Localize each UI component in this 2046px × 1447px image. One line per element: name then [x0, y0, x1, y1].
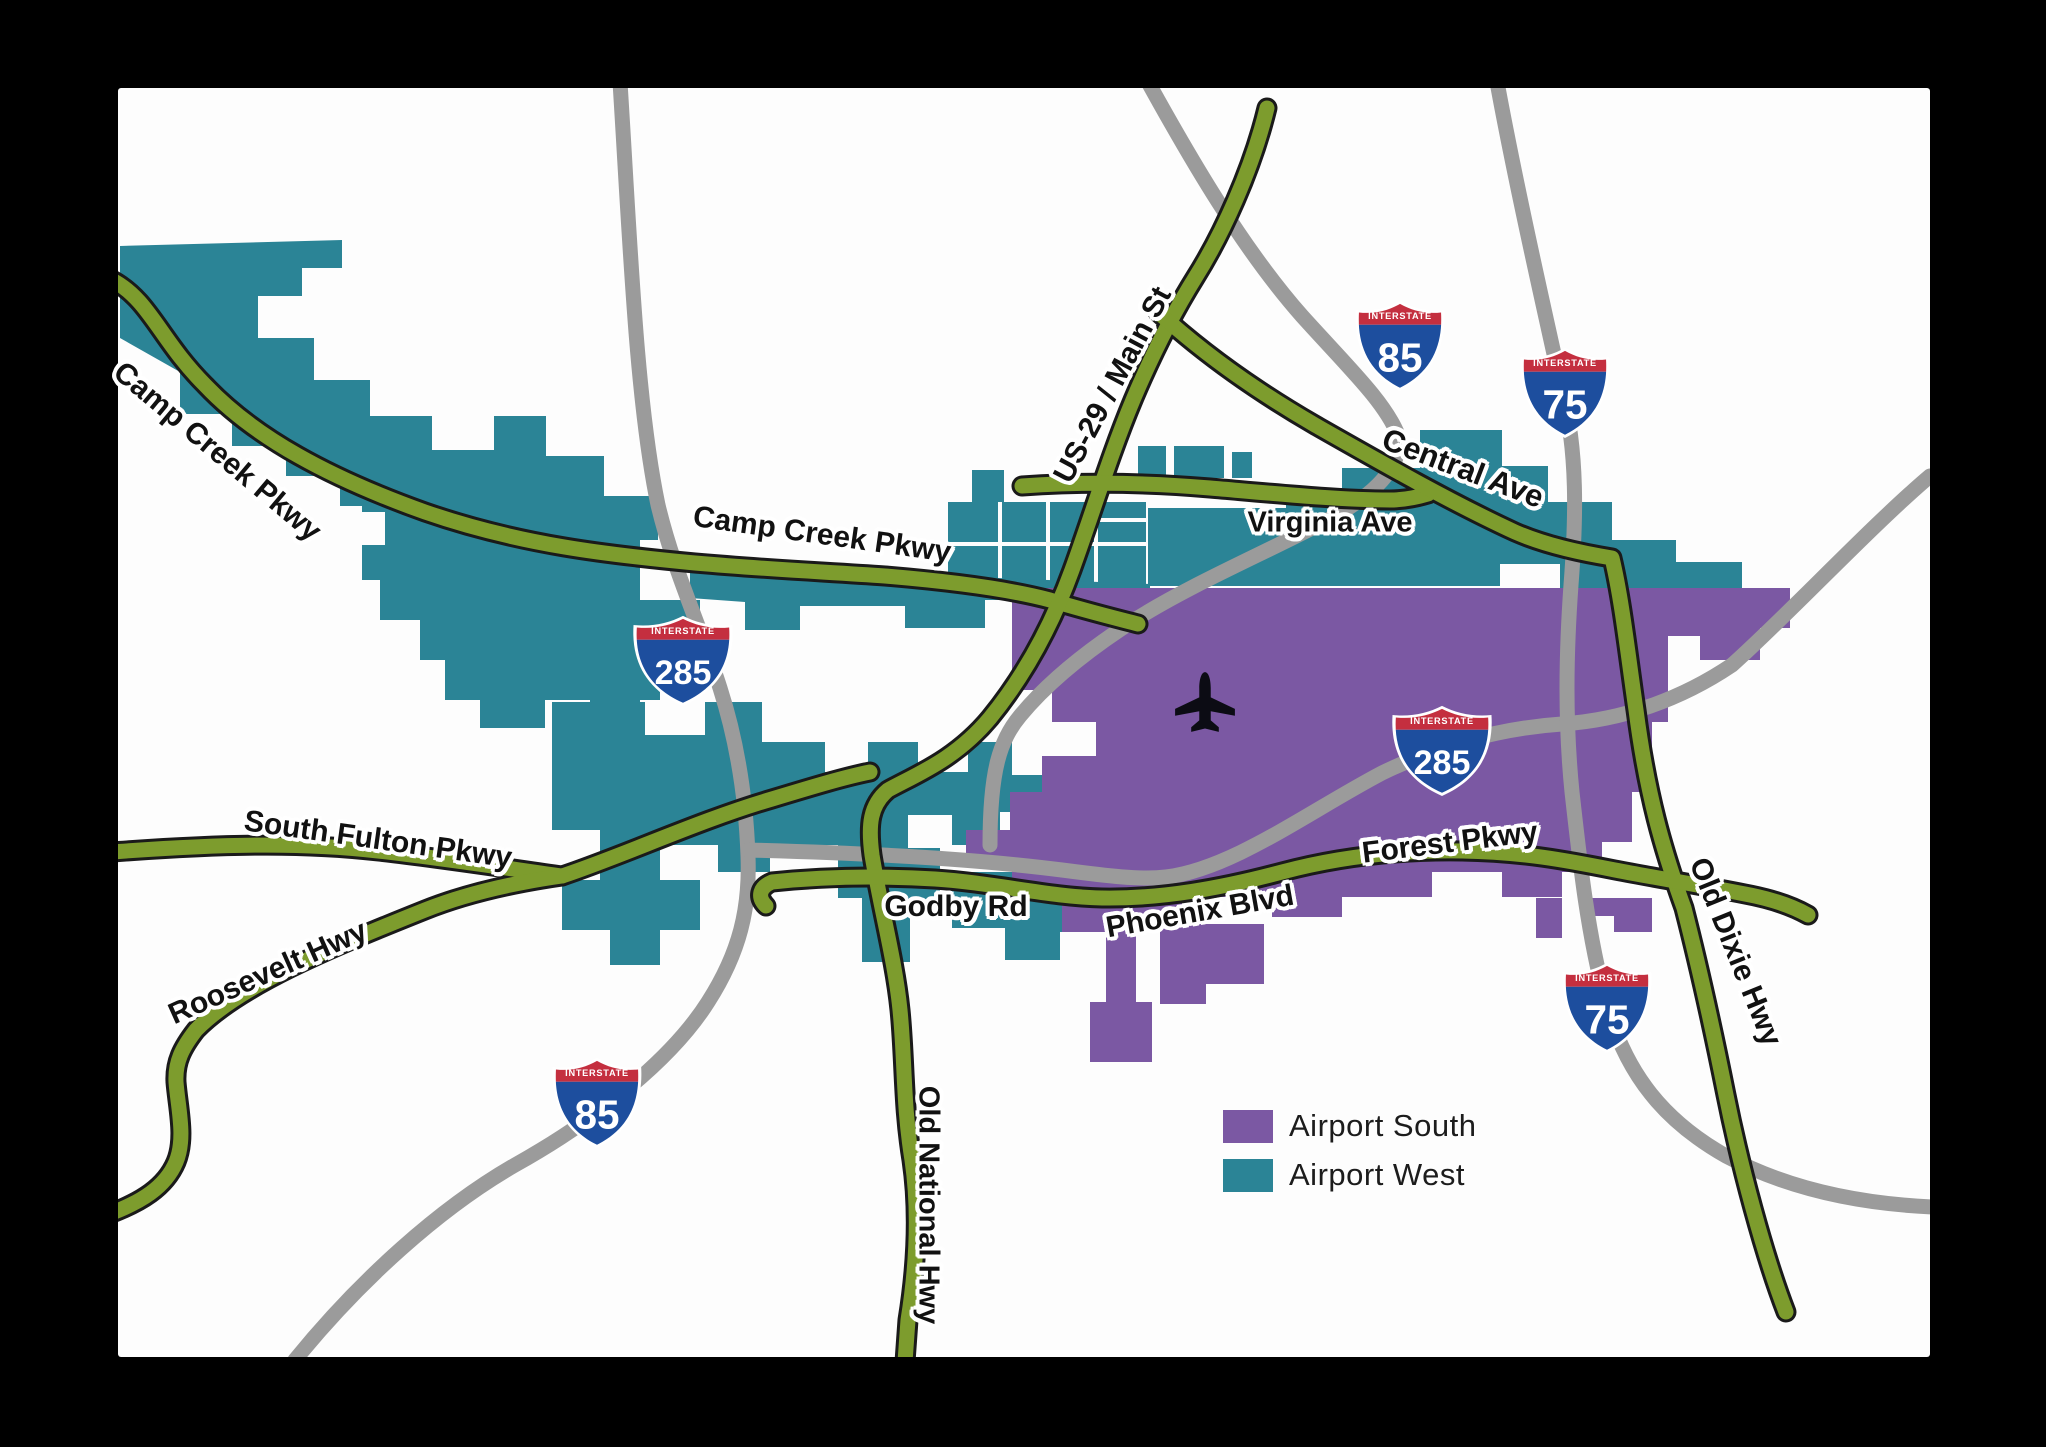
legend-label: Airport South — [1289, 1108, 1476, 1144]
shield-number-text: 85 — [1377, 335, 1422, 381]
legend-item-airport-south: Airport South — [1223, 1108, 1476, 1144]
airport-west-area — [1138, 446, 1166, 478]
shield-banner-text: INTERSTATE — [1368, 311, 1432, 321]
shield-number-text: 75 — [1584, 997, 1629, 1043]
legend-item-airport-west: Airport West — [1223, 1157, 1476, 1193]
shield-number-text: 85 — [574, 1092, 619, 1138]
shield-banner-text: INTERSTATE — [1533, 358, 1597, 368]
shield-number-text: 285 — [1414, 744, 1471, 782]
airport-west-swatch — [1223, 1159, 1273, 1192]
legend-label: Airport West — [1289, 1157, 1465, 1193]
road-label-old-national-hwy: Old National Hwy — [914, 1086, 943, 1324]
shield-number-text: 285 — [655, 654, 712, 692]
shield-banner-text: INTERSTATE — [1410, 716, 1474, 726]
shield-number-text: 75 — [1542, 382, 1587, 428]
road-label-virginia-ave: Virginia Ave — [1248, 509, 1413, 538]
shield-banner-text: INTERSTATE — [1575, 973, 1639, 983]
airport-west-area — [1232, 452, 1252, 478]
shield-banner-text: INTERSTATE — [651, 626, 715, 636]
airport-districts-map: INTERSTATE85INTERSTATE75INTERSTATE285INT… — [0, 0, 2046, 1447]
airport-west-area — [972, 470, 1004, 506]
road-label-godby-rd: Godby Rd — [884, 892, 1027, 922]
map-stage: INTERSTATE85INTERSTATE75INTERSTATE285INT… — [0, 0, 2046, 1447]
map-legend: Airport South Airport West — [1223, 1108, 1476, 1206]
shield-banner-text: INTERSTATE — [565, 1068, 629, 1078]
airport-south-swatch — [1223, 1110, 1273, 1143]
airport-west-area — [1174, 446, 1224, 478]
airport-south-area — [1536, 898, 1562, 938]
